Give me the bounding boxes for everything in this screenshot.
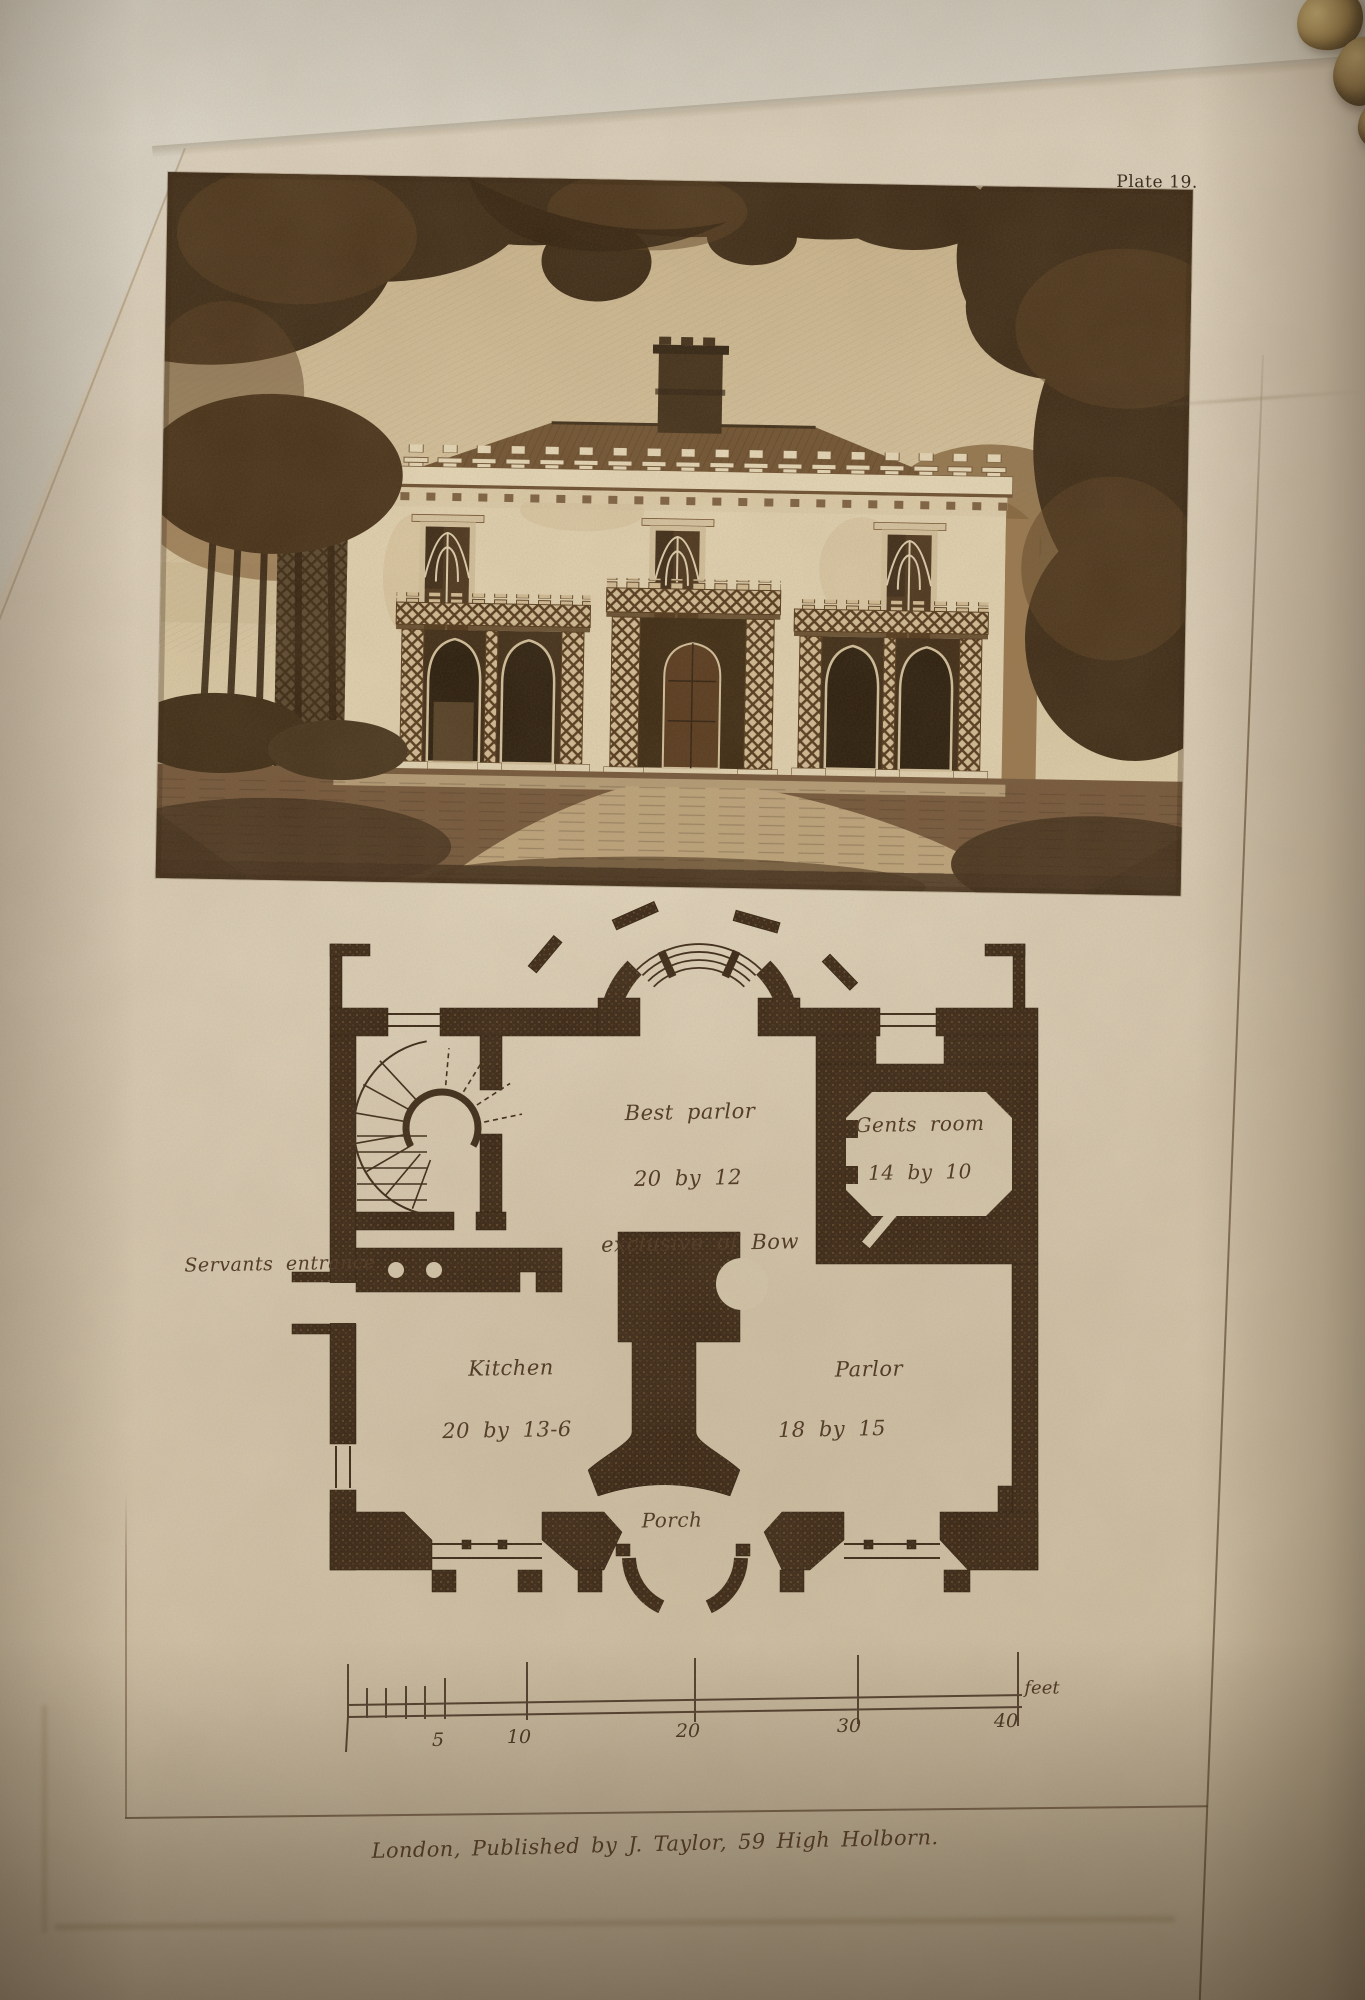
room-label-kitchen: Kitchen [468,1355,554,1380]
room-label-gents-room: Gents room [855,1111,984,1137]
label-porch: Porch [641,1507,702,1532]
room-dims-kitchen: 20 by 13-6 [442,1417,572,1443]
room-note-best-parlor: exclusive of Bow [601,1229,799,1256]
room-label-parlor: Parlor [835,1356,904,1381]
gents-chimney-breast [846,1166,858,1184]
right-edge-shadow [1195,0,1365,2000]
scale-tick-10: 10 [507,1726,531,1748]
scale-tick-40: 40 [994,1710,1018,1732]
label-servants-entrance: Servants entrance [184,1251,376,1276]
scale-tick-5: 5 [432,1729,444,1751]
room-dims-parlor: 18 by 15 [778,1416,887,1442]
plate-left-rule [125,1492,127,1818]
porch-walls [629,1558,741,1607]
elevation-engraving [156,172,1193,896]
scale-tick-20: 20 [676,1720,700,1742]
scale-bar [330,1640,1070,1790]
scale-tick-30: 30 [837,1715,861,1737]
room-dims-best-parlor: 20 by 12 [634,1165,743,1191]
plate-mark-left [42,1705,47,1933]
photographed-plate: Plate 19. [0,0,1365,2000]
scale-unit-feet: feet [1024,1678,1059,1699]
aquatint-grain [156,172,1193,896]
room-dims-gents-room: 14 by 10 [868,1159,972,1185]
room-label-best-parlor: Best parlor [624,1099,755,1125]
